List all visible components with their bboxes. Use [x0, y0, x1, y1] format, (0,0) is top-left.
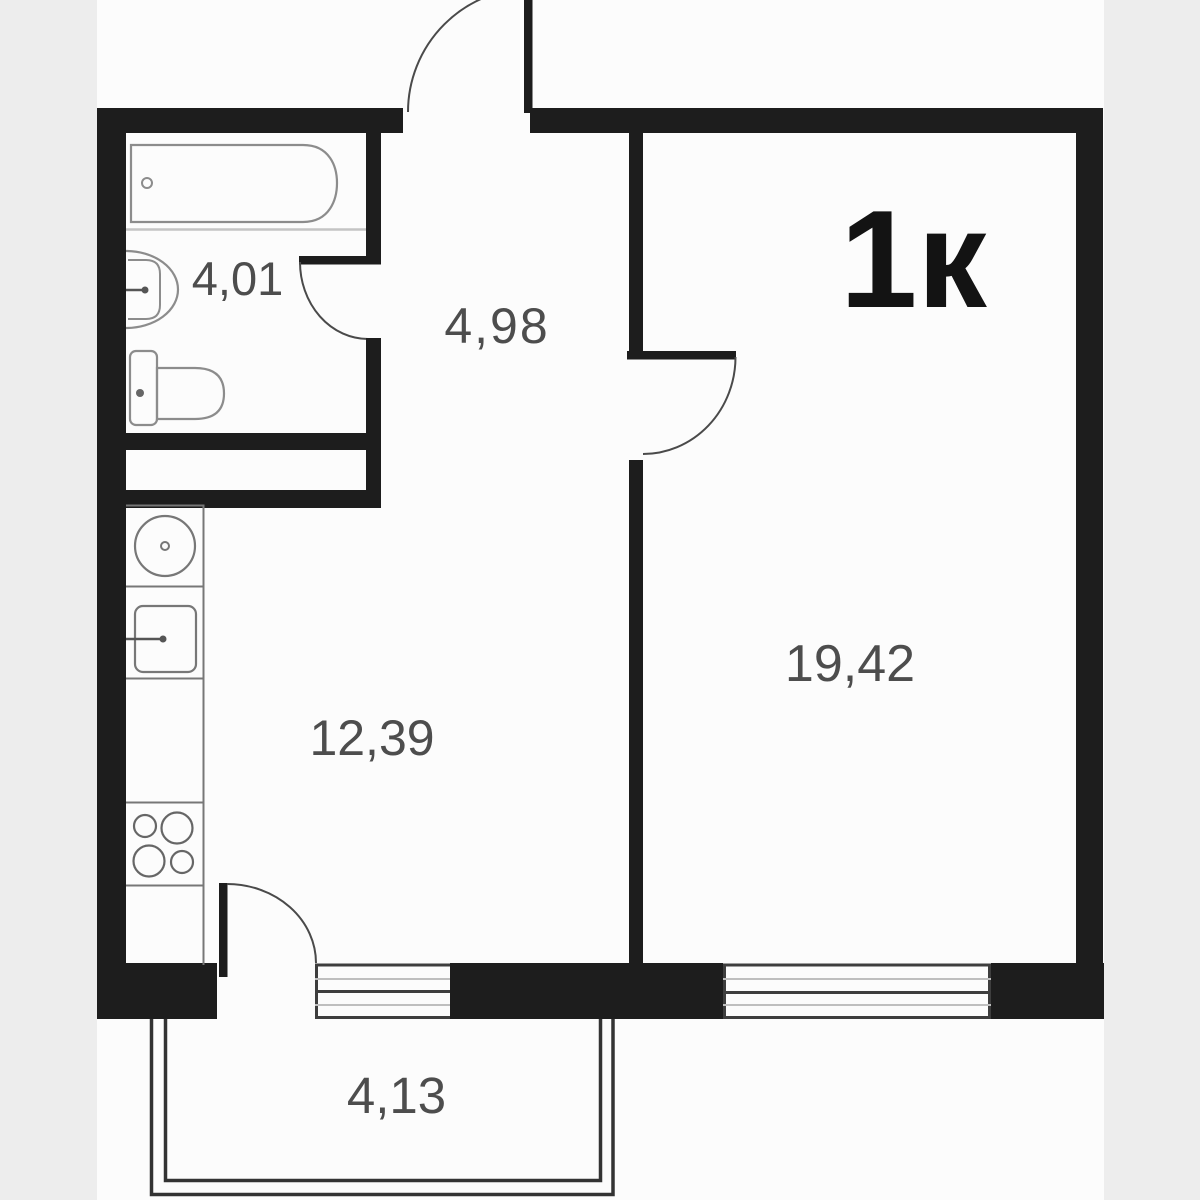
- svg-text:19,42: 19,42: [785, 635, 915, 693]
- svg-text:4,01: 4,01: [192, 252, 283, 305]
- svg-text:1к: 1к: [840, 182, 987, 337]
- svg-text:12,39: 12,39: [309, 710, 434, 766]
- svg-text:4,13: 4,13: [347, 1067, 446, 1124]
- svg-text:4,98: 4,98: [444, 298, 549, 354]
